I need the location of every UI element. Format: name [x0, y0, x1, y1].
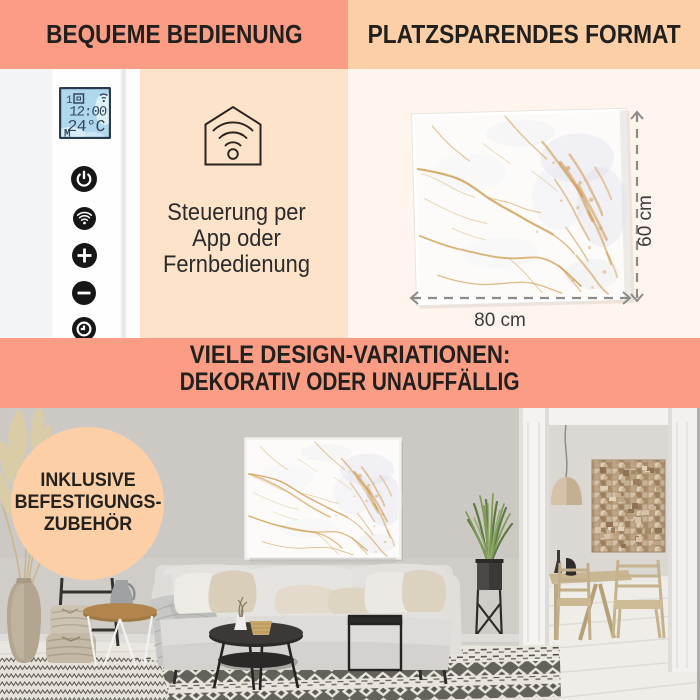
- svg-text:24°C: 24°C: [67, 117, 106, 136]
- svg-text:80 cm: 80 cm: [474, 310, 526, 331]
- svg-text:60 cm: 60 cm: [635, 195, 656, 247]
- svg-text:M: M: [64, 129, 71, 140]
